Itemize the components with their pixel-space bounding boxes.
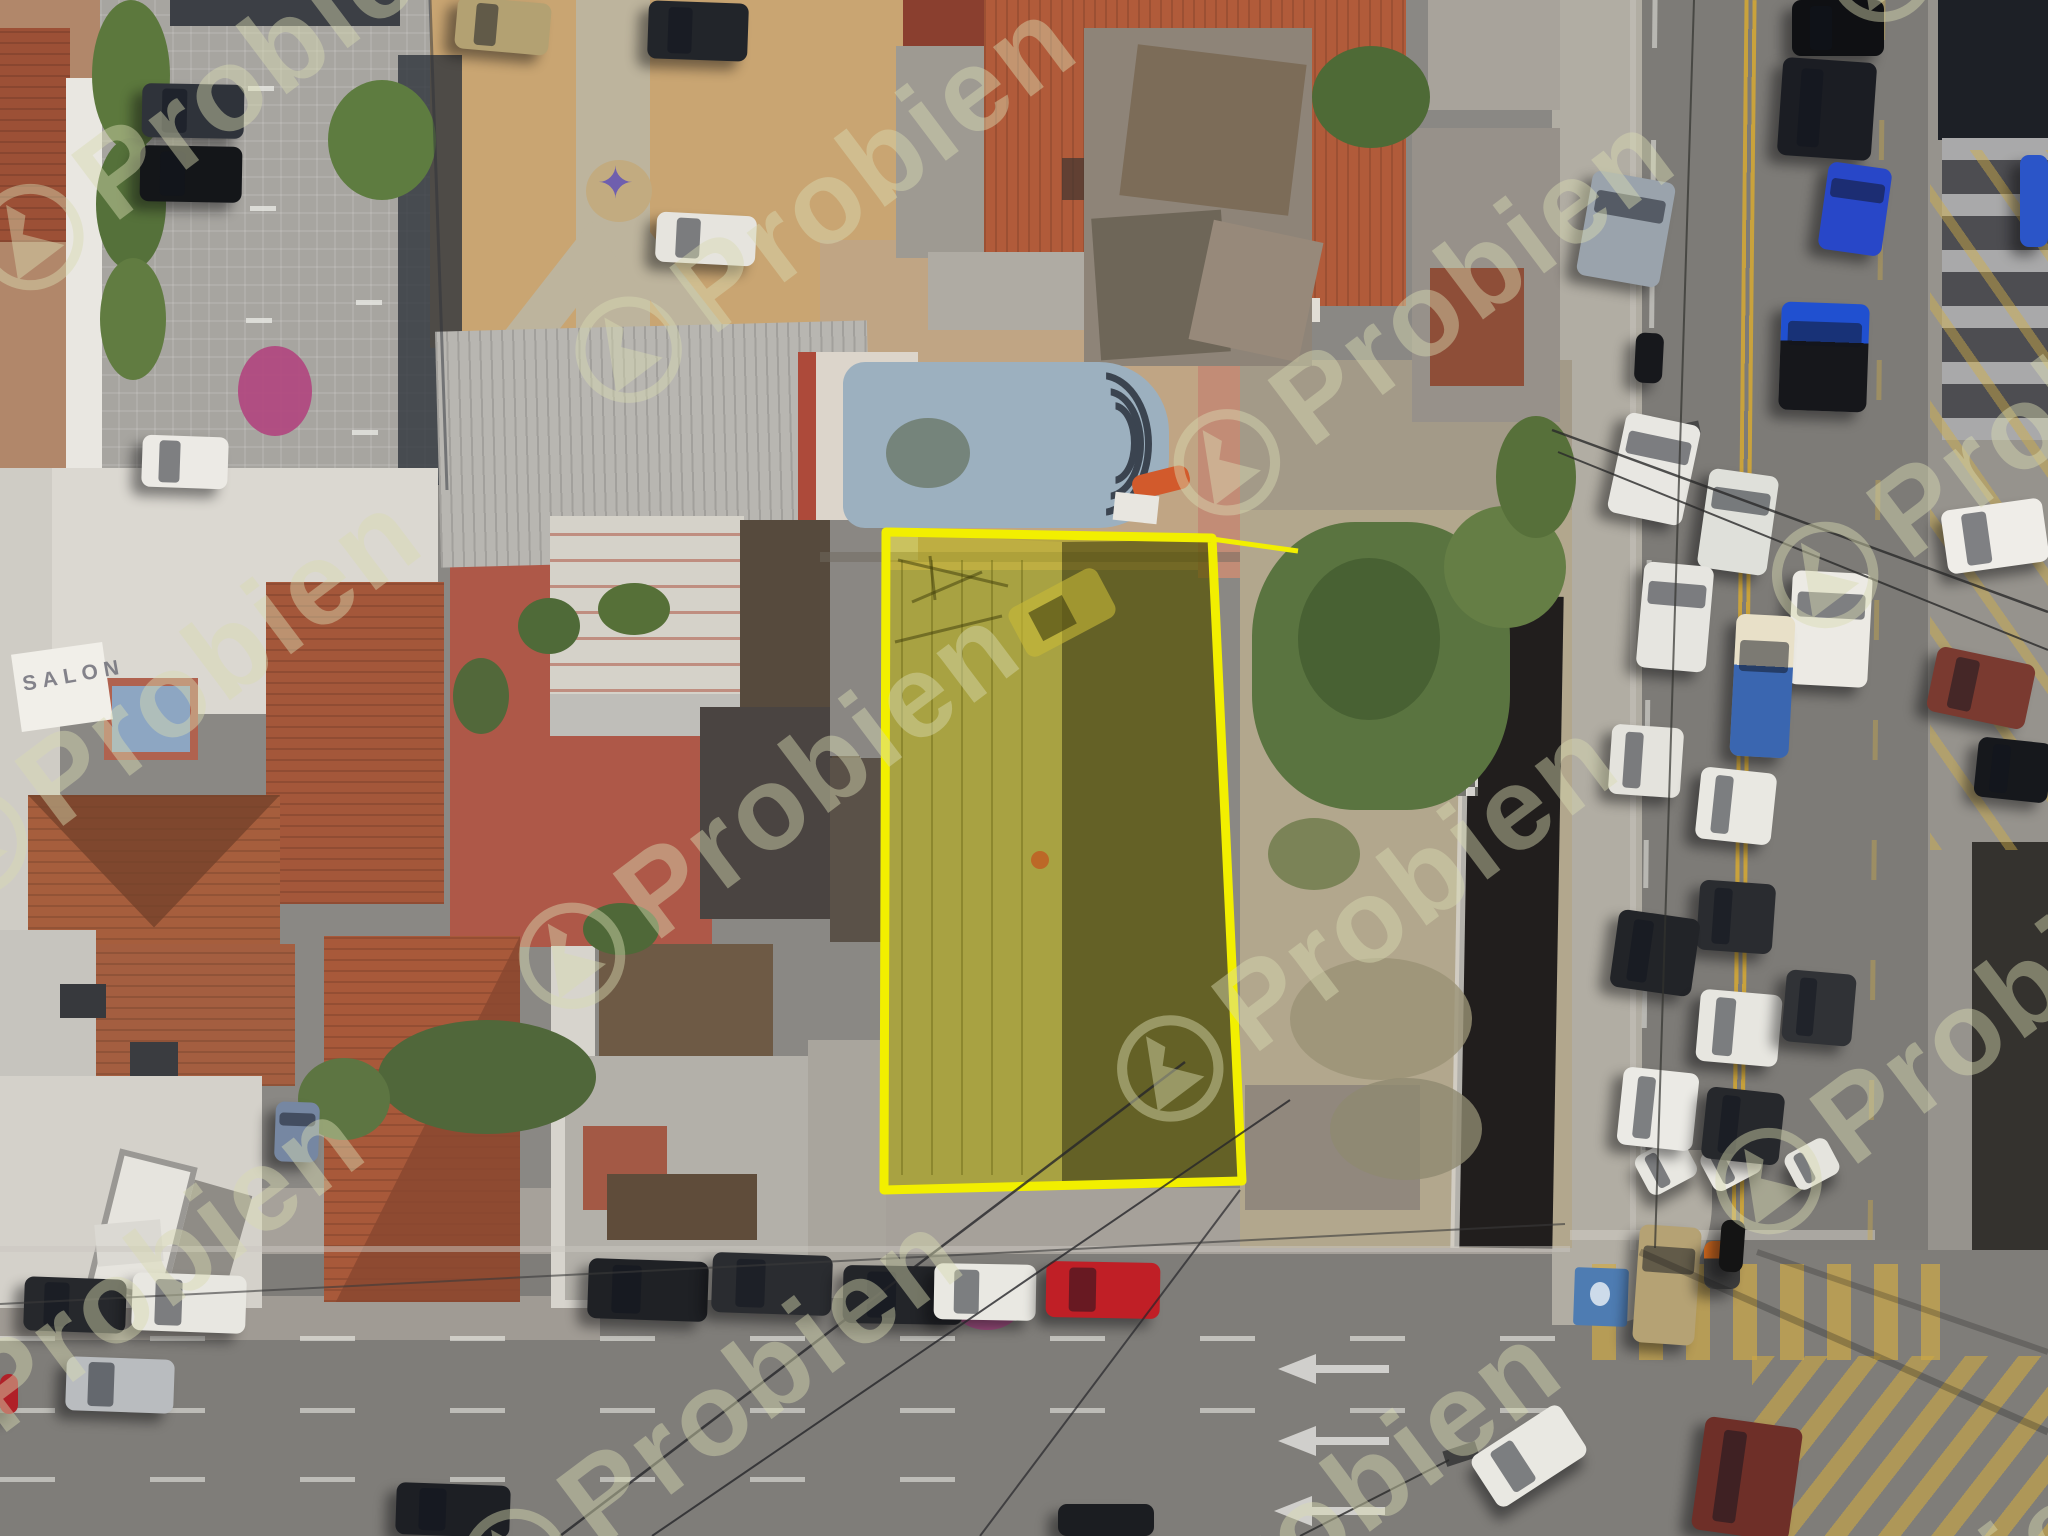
power-lines-overlay bbox=[0, 0, 2048, 1536]
power-line bbox=[652, 1100, 1290, 1536]
power-line bbox=[430, 0, 447, 490]
compass-rose-icon: ✦ bbox=[597, 158, 634, 209]
power-line bbox=[1757, 1252, 2048, 1352]
power-line bbox=[1552, 430, 2048, 612]
power-line bbox=[1558, 452, 2048, 650]
power-line bbox=[560, 1062, 1185, 1536]
aerial-photo: SALON ✦ ProbienProbienProbienProbienProb… bbox=[0, 0, 2048, 1536]
power-line bbox=[1655, 0, 1694, 1248]
power-line bbox=[0, 1224, 1565, 1304]
power-line bbox=[1300, 1460, 1449, 1536]
